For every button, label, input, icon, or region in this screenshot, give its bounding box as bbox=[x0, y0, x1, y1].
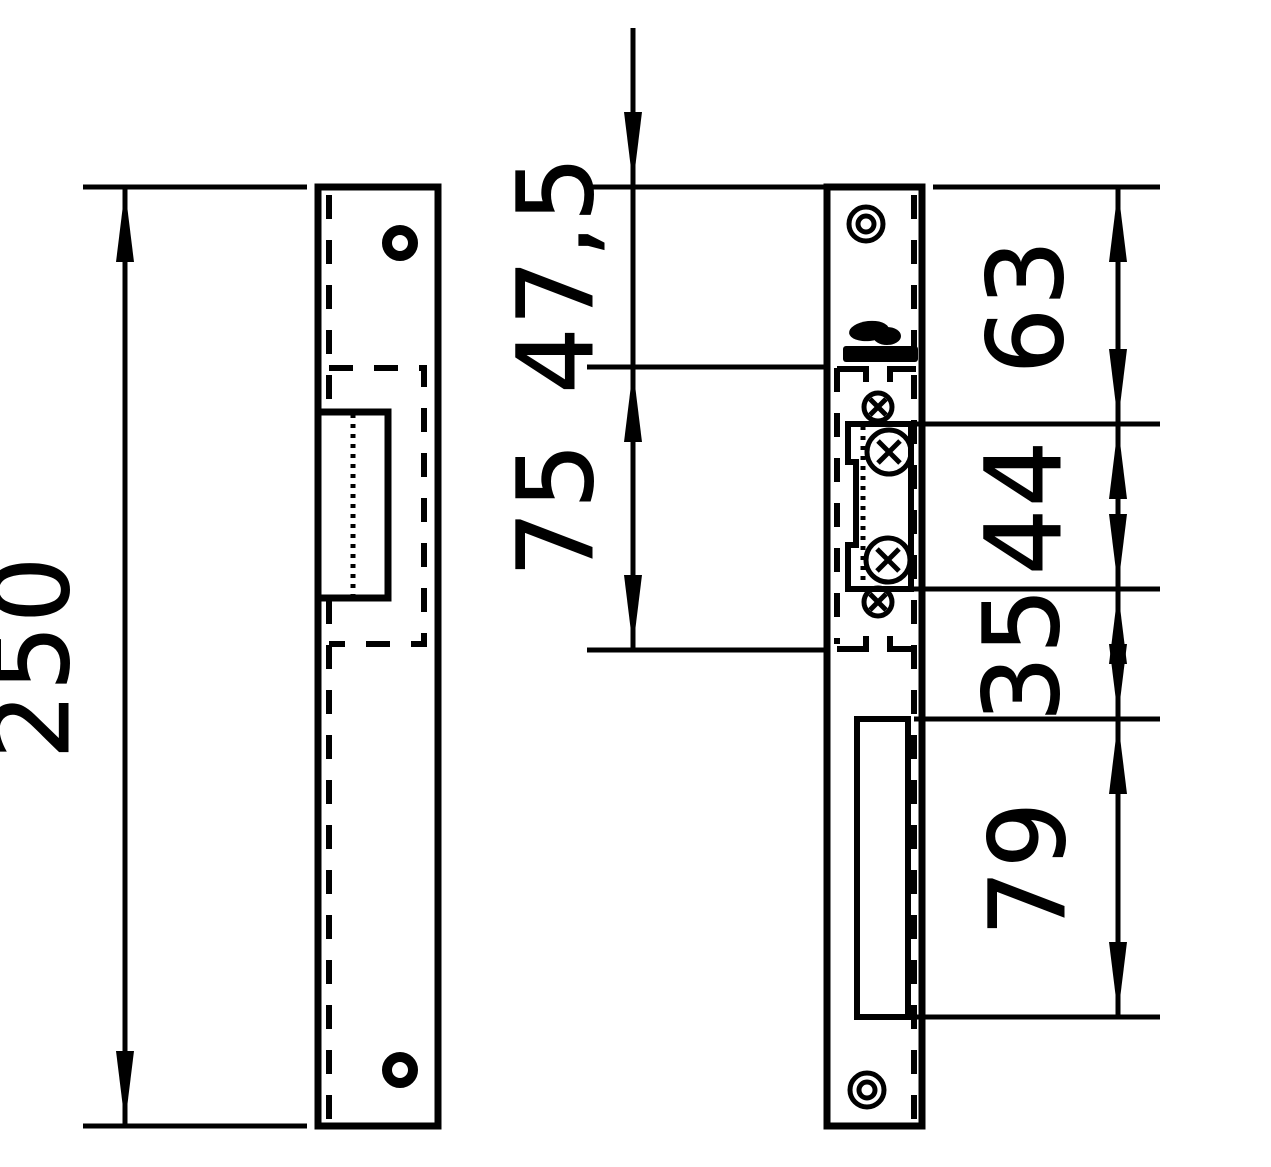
strike-plate-drawing: 250 47,5 75 bbox=[0, 0, 1271, 1167]
arrow-63-down bbox=[1109, 349, 1127, 422]
dim-label-75: 75 bbox=[495, 441, 617, 577]
arrow-35-down bbox=[1109, 644, 1127, 717]
dim-label-35: 35 bbox=[961, 586, 1083, 722]
dim-overall-height: 250 bbox=[0, 187, 307, 1126]
dim-label-63: 63 bbox=[965, 238, 1087, 374]
dim-label-47-5: 47,5 bbox=[495, 154, 617, 394]
arrow-79-up bbox=[1109, 721, 1127, 794]
arrow-up bbox=[116, 189, 134, 262]
arrow-down-at-top bbox=[624, 112, 642, 185]
drawing-sheet: 250 47,5 75 bbox=[0, 0, 1271, 1167]
arrow-down bbox=[116, 1051, 134, 1124]
dim-center-column: 47,5 75 bbox=[495, 28, 824, 650]
arrow-63-up bbox=[1109, 189, 1127, 262]
left-view bbox=[318, 187, 438, 1126]
arrow-down-at-recess-bottom bbox=[624, 575, 642, 648]
left-plate-outline bbox=[318, 187, 438, 1126]
dim-label-44: 44 bbox=[963, 439, 1085, 575]
right-view bbox=[827, 187, 922, 1126]
arrow-79-down bbox=[1109, 942, 1127, 1015]
lower-cutout bbox=[857, 719, 908, 1017]
dim-label-79: 79 bbox=[967, 800, 1089, 936]
dim-label-250: 250 bbox=[0, 555, 93, 760]
strike-keeper-body bbox=[848, 424, 911, 589]
arrow-44-up bbox=[1109, 426, 1127, 499]
arrow-44-down bbox=[1109, 514, 1127, 587]
arrow-up-at-recess-top bbox=[624, 369, 642, 442]
